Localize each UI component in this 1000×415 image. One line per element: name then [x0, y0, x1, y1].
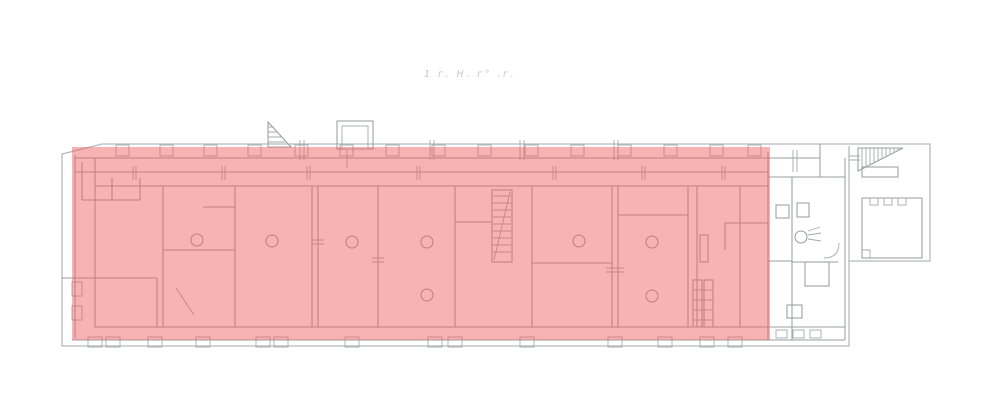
highlight-overlay: [72, 147, 770, 340]
spiral-stair-treads: [808, 227, 821, 241]
crenel-mark: [884, 198, 892, 205]
stair-landing: [862, 167, 898, 177]
exterior-stair-outline: [268, 122, 291, 147]
spiral-stair-newel: [795, 231, 807, 243]
bay-inner-wall: [342, 126, 368, 149]
crenel-mark: [793, 330, 804, 338]
door-swing-arc: [824, 243, 839, 258]
floor-plan-canvas: 1 г. Н. г° .г.: [0, 0, 1000, 415]
crenel-mark: [776, 330, 787, 338]
crenel-mark: [870, 198, 878, 205]
crenel-mark: [810, 330, 821, 338]
floor-plan-svg: 1 г. Н. г° .г.: [0, 0, 1000, 415]
stair-step-lines: [268, 127, 285, 142]
right-wing-walls: [768, 144, 845, 340]
extension-stair-outline: [858, 148, 903, 171]
pier-square: [797, 203, 809, 217]
pier-square: [776, 205, 789, 218]
pier-square: [787, 305, 802, 318]
extension-room-outline: [862, 198, 922, 258]
wall-joint-ticks: [793, 150, 797, 172]
right-extension: [849, 148, 922, 258]
north-stair-protrusion: [268, 122, 291, 147]
pier-square: [805, 262, 829, 286]
right-wing: [768, 144, 845, 340]
plan-annotation-text: 1 г. Н. г° .г.: [424, 69, 516, 80]
crenel-mark: [898, 198, 906, 205]
room-corner-notch: [862, 250, 870, 258]
